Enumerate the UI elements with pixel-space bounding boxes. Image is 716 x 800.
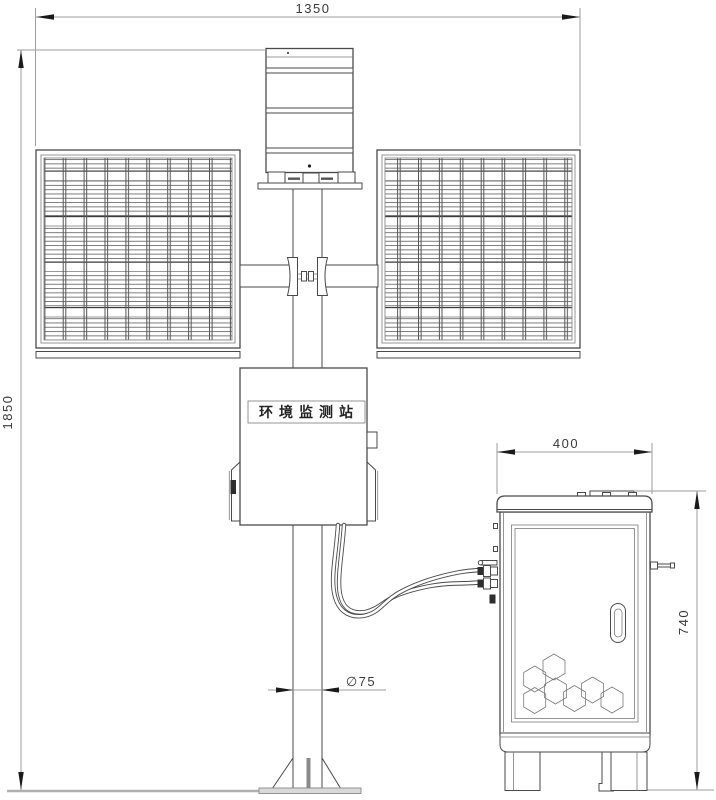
- solar-panel-right: [377, 150, 580, 358]
- equipment-cabinet: [494, 491, 675, 791]
- side-knob-right: [651, 562, 675, 569]
- sensor-band: [266, 108, 353, 113]
- cross-arm-left: [240, 265, 293, 287]
- cabinet-bottom-band: [500, 733, 650, 752]
- weather-sensor: [258, 49, 362, 190]
- door-hinge: [494, 524, 498, 529]
- station-box-label: 环境监测站: [259, 404, 359, 421]
- sensor-foot-dash: [321, 178, 333, 180]
- dim-text-pole-diameter: ∅75: [346, 674, 376, 689]
- base-plate: [259, 788, 361, 794]
- base-gusset-right: [322, 758, 341, 789]
- base-gusset-left: [272, 758, 293, 789]
- arrowhead: [694, 772, 699, 790]
- sensor-leg-right: [338, 172, 355, 183]
- dimension-cabinet-width: 400: [497, 436, 652, 494]
- station-control-box: 环境监测站: [229, 368, 377, 525]
- dimension-pole-diameter: ∅75: [268, 674, 386, 693]
- box-latch: [367, 432, 377, 448]
- cable-gland-lower: [478, 578, 498, 589]
- arrowhead: [276, 687, 294, 692]
- side-vent-block: [490, 595, 496, 604]
- panel-grid: [44, 158, 232, 340]
- panel-bottom-rail: [36, 352, 240, 359]
- arrowhead: [694, 491, 699, 509]
- sensor-bottom-dot: [308, 164, 311, 167]
- interconnect-cable: [333, 525, 480, 616]
- sensor-foot-dash: [288, 178, 300, 180]
- sensor-top-dot: [287, 52, 289, 54]
- cable-gland-upper: [478, 566, 498, 577]
- cabinet-foot-left: [505, 752, 540, 791]
- dim-text-overall-height: 1850: [0, 395, 15, 430]
- arrowhead: [18, 772, 23, 790]
- cross-arm-right: [322, 265, 378, 287]
- cabinet-foot-right: [611, 752, 647, 791]
- antenna-tip: [478, 561, 482, 565]
- anchor-bolt: [307, 758, 311, 789]
- clamp-bolt: [309, 272, 314, 282]
- arrowhead: [322, 687, 340, 692]
- sensor-mount-plate: [258, 183, 362, 189]
- monitoring-station-drawing: 环境监测站: [0, 0, 716, 800]
- sensor-leg-center: [303, 173, 319, 183]
- dim-text-overall-width: 1350: [296, 1, 331, 16]
- technical-drawing-canvas: 环境监测站: [0, 0, 716, 800]
- dim-text-cabinet-width: 400: [553, 436, 579, 451]
- cable-upper: [333, 525, 480, 616]
- arrowhead: [18, 50, 23, 68]
- solar-panel-left: [36, 150, 240, 358]
- arrowhead: [497, 449, 515, 454]
- cabinet-connectors: [478, 561, 498, 604]
- sensor-leg-left: [268, 172, 285, 183]
- panel-grid: [385, 158, 572, 340]
- arrowhead: [562, 14, 580, 19]
- panel-bottom-rail: [377, 352, 580, 359]
- box-body: [240, 368, 367, 525]
- antenna-rod: [481, 561, 497, 566]
- dim-text-cabinet-height: 740: [676, 609, 691, 635]
- wing-vent: [231, 480, 237, 494]
- cable-lower: [339, 525, 480, 612]
- sensor-band: [266, 68, 353, 73]
- arrowhead: [36, 14, 54, 19]
- cabinet-body: [500, 512, 650, 735]
- arrowhead: [634, 449, 652, 454]
- sensor-band: [266, 148, 353, 153]
- clamp-bolt: [302, 272, 307, 282]
- door-hinge: [494, 547, 498, 552]
